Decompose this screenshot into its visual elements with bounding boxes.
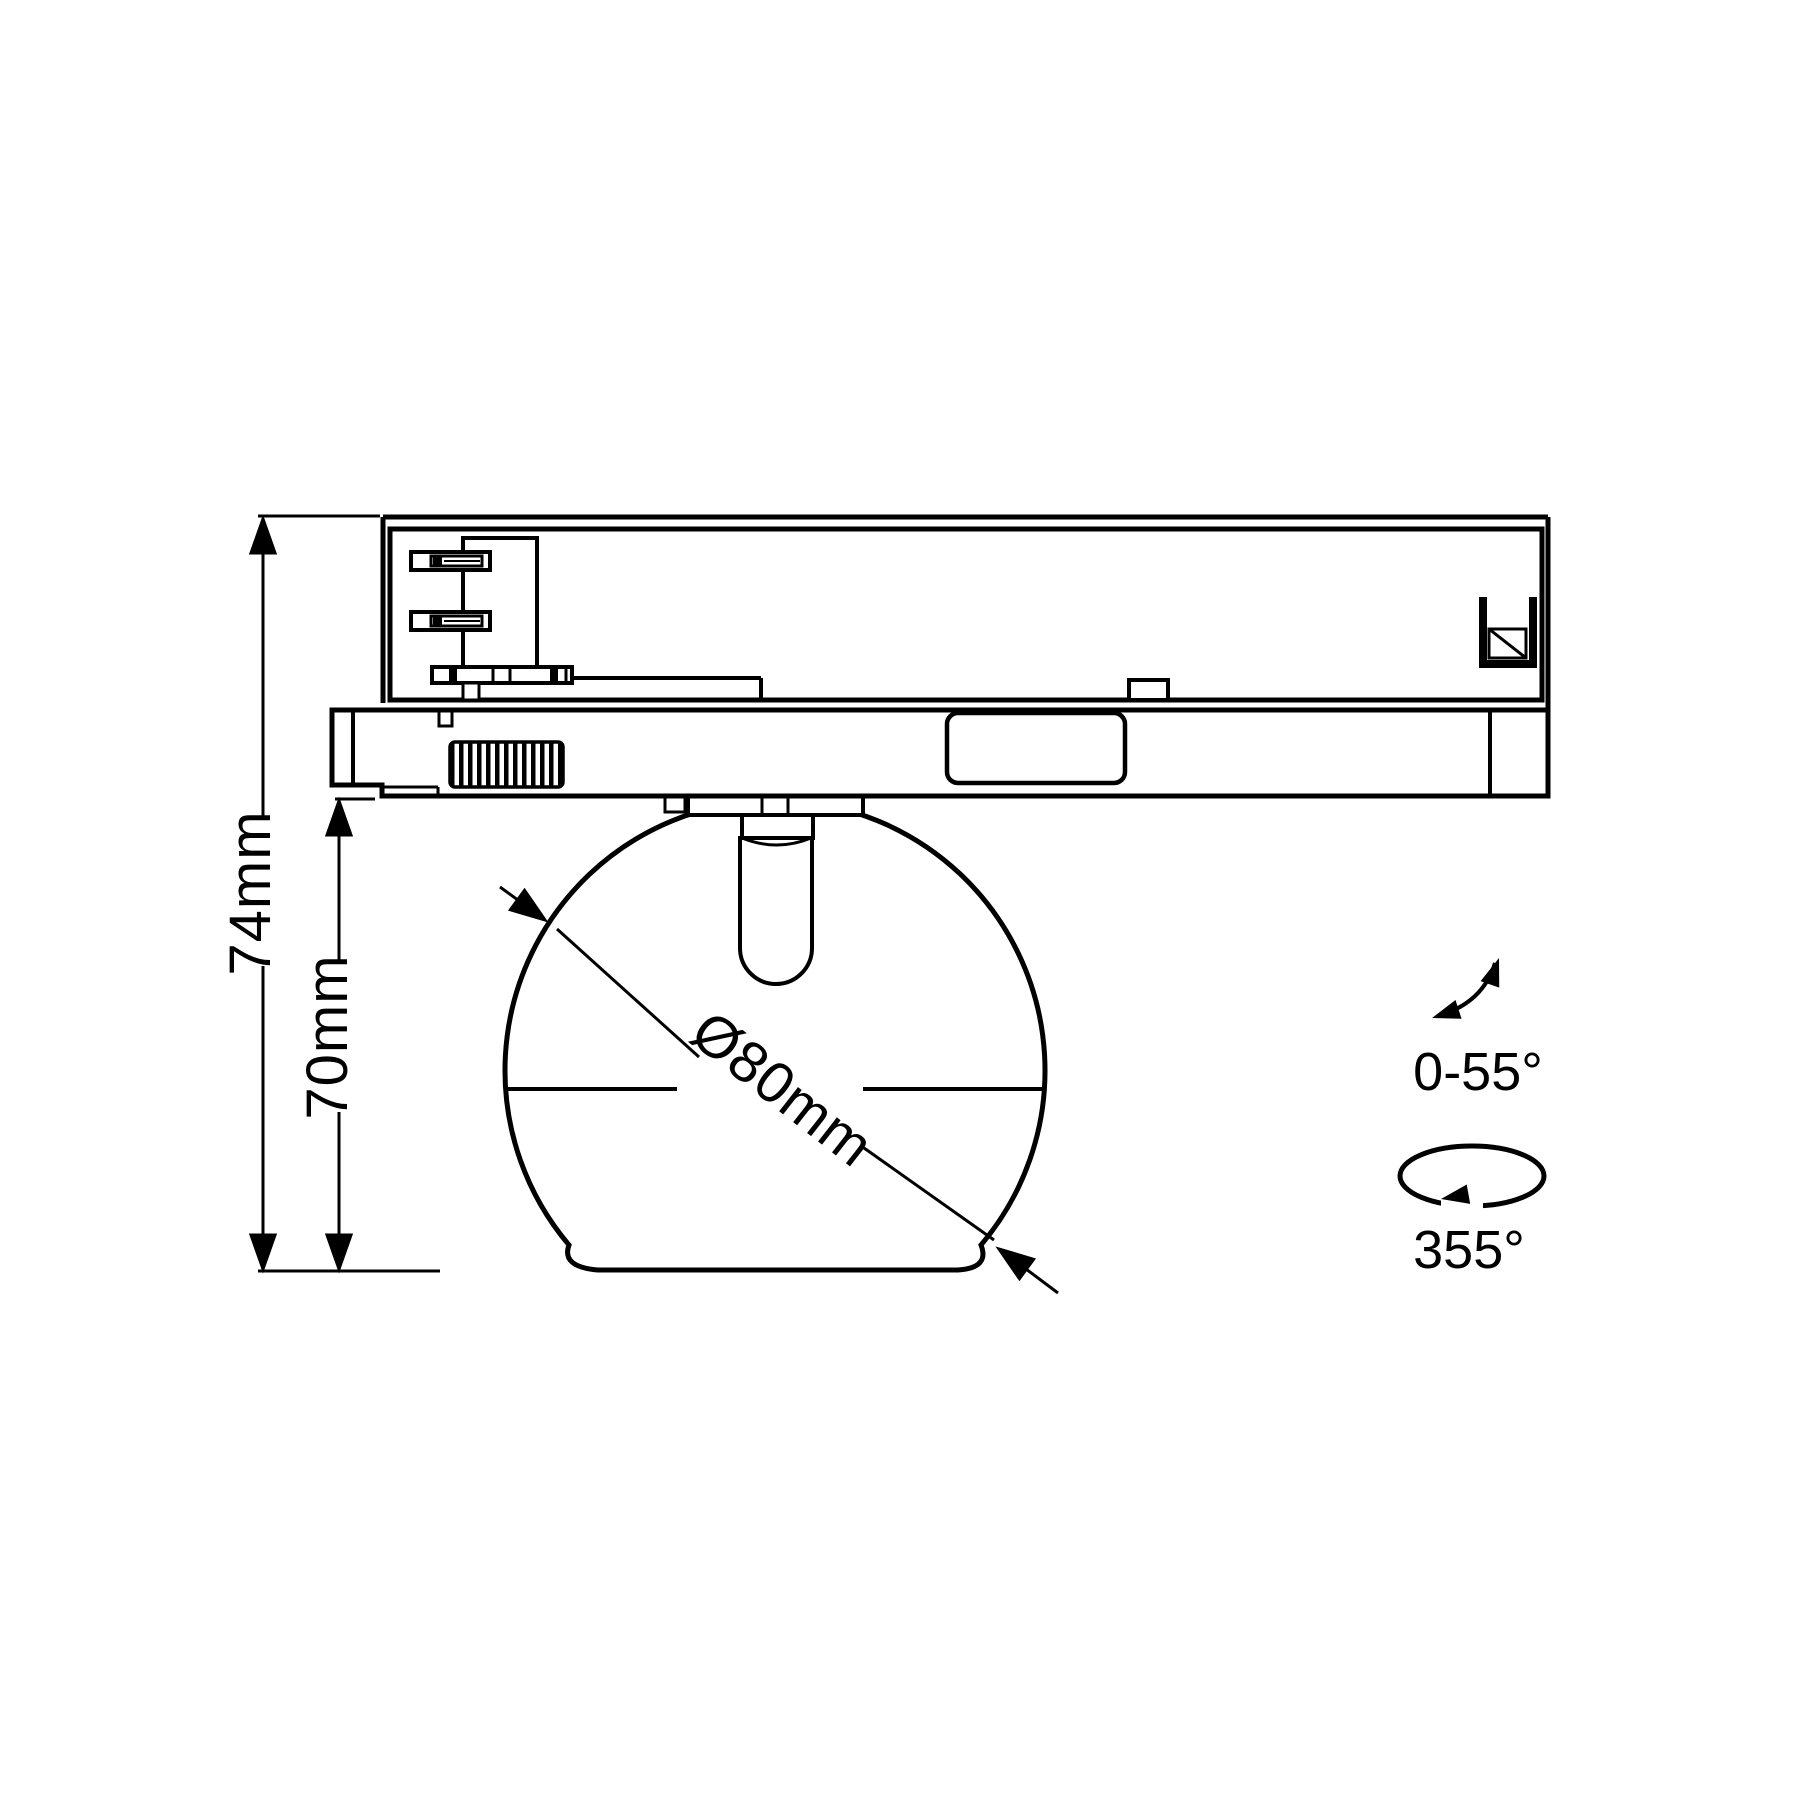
terminal-divider-thick: [449, 667, 457, 683]
contact-prong-detail: [433, 557, 442, 565]
tilt-range-label: 0-55°: [1413, 1042, 1543, 1102]
contact-prong-detail: [433, 617, 442, 625]
lamp-neck: [740, 838, 812, 984]
arrow-down-icon: [251, 1235, 275, 1269]
floor-bump: [1129, 680, 1168, 700]
label-plate: [947, 713, 1125, 783]
terminal-foot-stem: [463, 683, 479, 700]
arrow-up-icon: [251, 519, 275, 553]
power-contacts: [411, 552, 490, 630]
lock-bracket: [1483, 597, 1533, 664]
technical-drawing-page: 74mm 70mm Ø80mm: [0, 0, 1800, 1800]
neck-tube: [740, 838, 812, 984]
head-height-label: 70mm: [295, 954, 360, 1119]
knurled-adjustment-knob: [450, 742, 563, 787]
terminal-divider-thick: [550, 667, 558, 683]
terminal-foot: [432, 667, 572, 700]
overall-height-label: 74mm: [218, 810, 283, 975]
arrow-up-icon: [327, 801, 351, 835]
mounting-plate: [572, 678, 761, 700]
arm-top-notch: [439, 711, 452, 726]
arrow-up-left-icon: [992, 1239, 1034, 1278]
arrow-left-icon: [1429, 1000, 1462, 1027]
pivot-plate: [688, 796, 863, 815]
rotation-range-label: 355°: [1413, 1220, 1525, 1280]
neck-collar: [742, 815, 813, 838]
rotation-angle-indicator: [1400, 1146, 1544, 1216]
arrow-tail-lower: [1022, 1266, 1058, 1293]
tilt-angle-indicator: [1429, 955, 1508, 1028]
adapter-arm: [332, 710, 1548, 796]
track-spotlight-technical-drawing: 74mm 70mm Ø80mm: [0, 0, 1800, 1800]
arrow-down-icon: [327, 1235, 351, 1269]
